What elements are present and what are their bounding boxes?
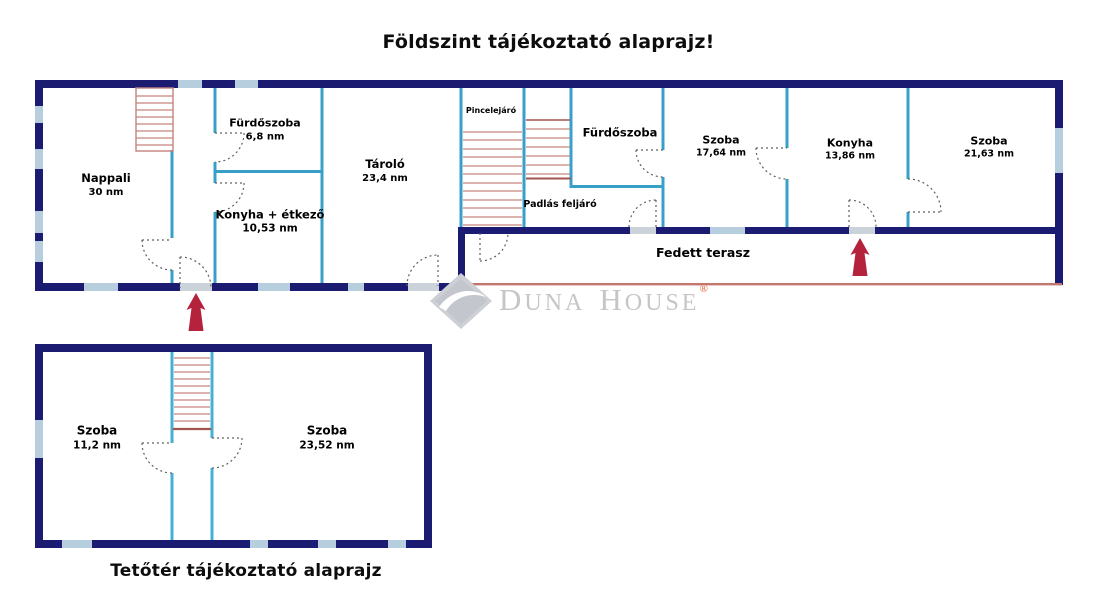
attic-door-arcs [142, 438, 242, 473]
room-label-furdoszoba-1: Fürdőszoba 6,8 nm [229, 116, 300, 143]
room-label-nappali: Nappali 30 nm [81, 171, 131, 199]
room-label-konyha-etkezo: Konyha + étkező 10,53 nm [216, 208, 325, 237]
floorplan-page: Földszint tájékoztató alaprajz! Tetőtér … [0, 0, 1097, 600]
ground-floor-plan [35, 80, 1063, 291]
attic-access-staircase [526, 120, 571, 179]
room-label-szoba-1764: Szoba 17,64 nm [696, 134, 746, 161]
room-label-szoba-112: Szoba 11,2 nm [73, 423, 121, 452]
attic-floor-title: Tetőtér tájékoztató alaprajz [0, 561, 492, 581]
entrance-arrow-icon [187, 293, 206, 331]
room-label-konyha-1386: Konyha 13,86 nm [825, 137, 875, 164]
room-label-szoba-2163: Szoba 21,63 nm [964, 135, 1014, 162]
room-label-padlas-feljaro: Padlás feljáró [523, 199, 596, 211]
attic-interior-walls [171, 352, 214, 540]
room-label-szoba-2352: Szoba 23,52 nm [299, 423, 354, 452]
terrace-arrow-icon [851, 238, 870, 276]
nappali-staircase [136, 88, 173, 151]
room-label-fedett-terasz: Fedett terasz [656, 245, 750, 261]
room-label-pincelejaro: Pincelejáró [466, 106, 516, 116]
duna-house-watermark: DUNAHOUSE® [499, 282, 708, 318]
registered-mark: ® [699, 283, 707, 295]
room-label-furdoszoba-2: Fürdőszoba [583, 126, 658, 141]
ground-floor-title: Földszint tájékoztató alaprajz! [0, 31, 1097, 53]
attic-staircase [173, 358, 211, 429]
cellar-staircase [463, 132, 522, 225]
room-label-tarolo: Tároló 23,4 nm [362, 157, 408, 185]
duna-house-logo-icon [430, 273, 492, 329]
